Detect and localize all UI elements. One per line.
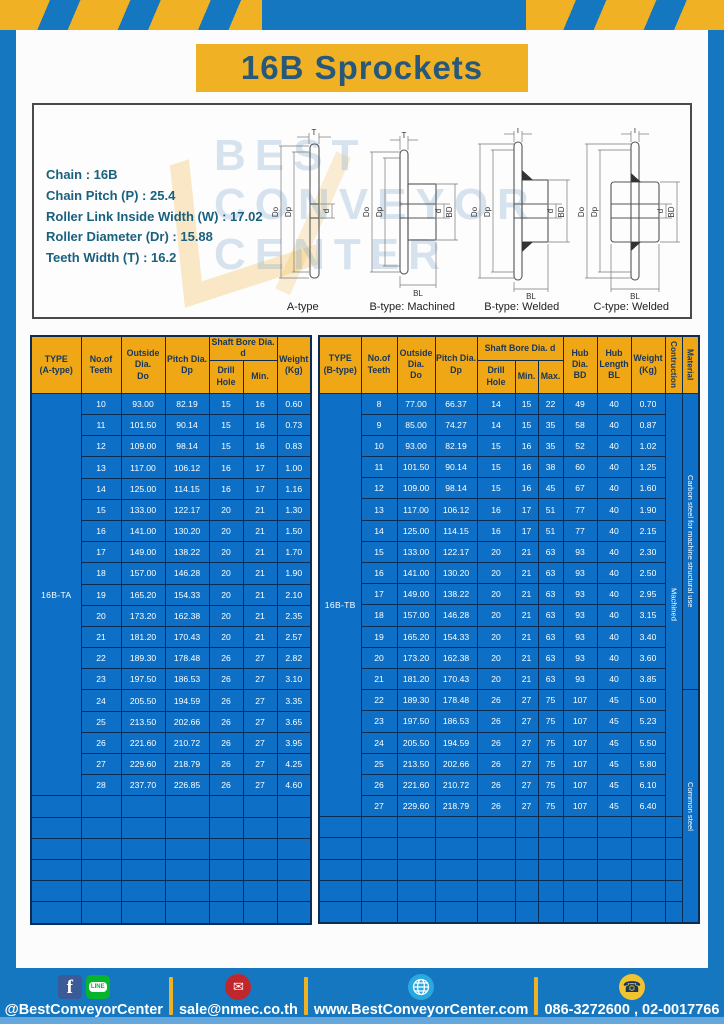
table-cell: 117.00 [397, 499, 435, 520]
table-cell: 27 [81, 754, 121, 775]
table-cell: 130.20 [435, 563, 477, 584]
table-cell: 114.15 [165, 478, 209, 499]
table-cell: 27 [515, 711, 538, 732]
svg-text:BL: BL [413, 289, 423, 298]
table-cell [81, 881, 121, 902]
table-cell [319, 859, 361, 880]
table-cell: 17 [243, 478, 277, 499]
table-cell: 0.87 [631, 414, 665, 435]
table-cell: 21 [515, 541, 538, 562]
table-cell: 40 [597, 563, 631, 584]
table-cell: 58 [563, 414, 597, 435]
table-cell: 114.15 [435, 520, 477, 541]
header-min: Min. [515, 360, 538, 393]
table-cell: 117.00 [121, 457, 165, 478]
table-cell: 82.19 [435, 435, 477, 456]
header-shaft-bore: Shaft Bore Dia. d [477, 336, 563, 360]
header-pitch-dia: Pitch Dia.Dp [435, 336, 477, 393]
b-machined-drawing: T Do Dp d [358, 128, 466, 300]
table-cell: 20 [477, 605, 515, 626]
table-cell: 157.00 [121, 563, 165, 584]
table-cell: 1.02 [631, 435, 665, 456]
email-address[interactable]: sale@nmec.co.th [179, 1002, 298, 1018]
table-cell: 229.60 [121, 754, 165, 775]
table-cell: 3.60 [631, 647, 665, 668]
table-cell: 45 [597, 711, 631, 732]
table-cell: 18 [361, 605, 397, 626]
footer-website[interactable]: www.BestConveyorCenter.com [314, 974, 529, 1018]
table-cell: Carbon steel for machine structural use [682, 393, 699, 690]
table-cell [121, 902, 165, 924]
table-cell: 75 [538, 690, 563, 711]
table-cell: Machined [665, 393, 682, 817]
table-cell: 16 [209, 457, 243, 478]
table-cell: 93 [563, 626, 597, 647]
header-pitch-dia: Pitch Dia.Dp [165, 336, 209, 393]
table-cell: 40 [597, 393, 631, 414]
phone-icon[interactable]: ☎ [619, 974, 645, 1000]
table-cell: 20 [209, 563, 243, 584]
facebook-icon[interactable]: f [58, 975, 82, 999]
table-cell: 1.16 [277, 478, 311, 499]
table-cell [319, 880, 361, 901]
table-cell: 20 [209, 499, 243, 520]
table-cell [277, 859, 311, 880]
header-type: TYPE(A-type) [31, 336, 81, 393]
social-handle[interactable]: @BestConveyorCenter [5, 1002, 163, 1018]
table-cell: 9 [361, 414, 397, 435]
table-cell: 20 [477, 563, 515, 584]
table-cell [665, 880, 682, 901]
b-type-spec-table: TYPE(B-type) No.ofTeeth OutsideDia.Do Pi… [318, 335, 700, 924]
svg-text:T: T [311, 128, 316, 137]
table-cell: 125.00 [397, 520, 435, 541]
table-cell: 16 [515, 478, 538, 499]
table-cell: 52 [563, 435, 597, 456]
spec-teeth-width: Teeth Width (T) : 16.2 [46, 248, 263, 269]
table-cell: 3.40 [631, 626, 665, 647]
table-cell [31, 859, 81, 880]
table-cell: 77.00 [397, 393, 435, 414]
table-cell: 15 [81, 499, 121, 520]
table-cell: 149.00 [397, 584, 435, 605]
table-cell: 15 [515, 414, 538, 435]
table-cell: 107 [563, 732, 597, 753]
table-cell: 49 [563, 393, 597, 414]
table-cell [397, 902, 435, 924]
table-cell: 26 [209, 775, 243, 796]
table-cell [665, 838, 682, 859]
table-cell: 21 [515, 584, 538, 605]
table-cell: 221.60 [121, 732, 165, 753]
table-cell: 13 [361, 499, 397, 520]
table-cell [397, 817, 435, 838]
svg-text:d: d [546, 209, 555, 213]
table-cell: 23 [81, 669, 121, 690]
svg-text:T: T [402, 131, 407, 140]
table-cell [165, 838, 209, 859]
contact-footer: f LINE @BestConveyorCenter ✉ sale@nmec.c… [0, 968, 724, 1024]
line-app-icon[interactable]: LINE [86, 975, 110, 999]
chain-spec-block: Chain : 16B Chain Pitch (P) : 25.4 Rolle… [46, 165, 263, 269]
table-cell: 0.73 [277, 415, 311, 436]
footer-phone[interactable]: ☎ 086-3272600 , 02-0017766 [544, 974, 719, 1018]
footer-divider [304, 977, 308, 1015]
table-cell: 19 [81, 584, 121, 605]
table-cell: 21 [361, 668, 397, 689]
table-cell: 16 [81, 520, 121, 541]
table-cell: 15 [477, 478, 515, 499]
table-cell: 107 [563, 774, 597, 795]
table-cell: 1.60 [631, 478, 665, 499]
svg-text:BD: BD [445, 206, 454, 217]
header-weight: Weight(Kg) [631, 336, 665, 393]
header-construction: Contruction [665, 336, 682, 393]
table-cell: 178.48 [435, 690, 477, 711]
table-cell: 18 [81, 563, 121, 584]
table-cell: 93 [563, 563, 597, 584]
table-cell: 26 [81, 732, 121, 753]
table-cell: 40 [597, 626, 631, 647]
table-cell: 40 [597, 478, 631, 499]
table-cell: 1.30 [277, 499, 311, 520]
table-cell [209, 817, 243, 838]
type-cell: 16B-TA [31, 393, 81, 796]
svg-text:BL: BL [630, 292, 640, 300]
table-cell: 38 [538, 457, 563, 478]
table-cell [121, 881, 165, 902]
table-cell: 20 [81, 605, 121, 626]
table-cell [121, 859, 165, 880]
spec-roller-diameter: Roller Diameter (Dr) : 15.88 [46, 227, 263, 248]
table-cell: 35 [538, 435, 563, 456]
table-cell [277, 817, 311, 838]
header-weight: Weight(Kg) [277, 336, 311, 393]
table-cell: 189.30 [121, 648, 165, 669]
table-cell: 25 [361, 753, 397, 774]
table-cell: 27 [243, 669, 277, 690]
header-hub-dia: Hub Dia.BD [563, 336, 597, 393]
table-cell: 63 [538, 584, 563, 605]
table-cell: 93.00 [397, 435, 435, 456]
diagram-a-type: T Do Dp d A-type [248, 111, 358, 313]
table-cell: 26 [209, 690, 243, 711]
table-cell: 21 [515, 668, 538, 689]
table-cell: 26 [477, 711, 515, 732]
table-cell: 93 [563, 584, 597, 605]
table-cell: 93 [563, 541, 597, 562]
table-cell: 210.72 [165, 732, 209, 753]
table-cell: 77 [563, 499, 597, 520]
table-cell: 15 [209, 436, 243, 457]
table-cell: 130.20 [165, 520, 209, 541]
svg-text:Do: Do [271, 206, 280, 217]
table-cell: 75 [538, 732, 563, 753]
table-cell: 20 [477, 626, 515, 647]
table-cell: 20 [477, 584, 515, 605]
table-cell: 20 [209, 542, 243, 563]
table-cell: 141.00 [121, 520, 165, 541]
diagram-b-welded: T Do Dp d [467, 111, 577, 313]
table-cell: 66.37 [435, 393, 477, 414]
table-cell: 40 [597, 668, 631, 689]
table-cell [435, 902, 477, 924]
table-cell: 12 [361, 478, 397, 499]
table-cell [209, 859, 243, 880]
table-cell: 75 [538, 796, 563, 817]
table-cell: 1.50 [277, 520, 311, 541]
table-cell: 0.70 [631, 393, 665, 414]
table-cell: 21 [515, 647, 538, 668]
table-cell: 63 [538, 563, 563, 584]
table-cell: 75 [538, 711, 563, 732]
table-cell: 3.15 [631, 605, 665, 626]
table-cell [538, 859, 563, 880]
table-cell [397, 838, 435, 859]
table-cell: 3.10 [277, 669, 311, 690]
header-shaft-bore: Shaft Bore Dia. d [209, 336, 277, 360]
top-left-stripes [0, 0, 262, 30]
table-cell: 45 [597, 753, 631, 774]
table-cell: 2.10 [277, 584, 311, 605]
table-cell: 0.60 [277, 393, 311, 414]
table-cell [435, 880, 477, 901]
table-cell: 202.66 [435, 753, 477, 774]
table-cell: 26 [209, 732, 243, 753]
table-cell: 22 [81, 648, 121, 669]
table-cell [563, 902, 597, 924]
table-cell: 63 [538, 541, 563, 562]
table-cell: 51 [538, 520, 563, 541]
table-cell [631, 817, 665, 838]
table-cell [563, 880, 597, 901]
table-cell: 138.22 [165, 542, 209, 563]
table-cell: 101.50 [121, 415, 165, 436]
table-cell [477, 817, 515, 838]
table-cell: 213.50 [397, 753, 435, 774]
table-cell [81, 838, 121, 859]
table-cell [597, 902, 631, 924]
table-cell: 16 [243, 415, 277, 436]
table-cell [31, 902, 81, 924]
table-cell: 13 [81, 457, 121, 478]
table-cell: 23 [361, 711, 397, 732]
table-cell: 210.72 [435, 774, 477, 795]
table-cell: 40 [597, 435, 631, 456]
table-cell: 178.48 [165, 648, 209, 669]
table-cell: 5.80 [631, 753, 665, 774]
table-cell: 154.33 [435, 626, 477, 647]
table-cell [515, 838, 538, 859]
table-cell: 1.00 [277, 457, 311, 478]
table-cell [243, 902, 277, 924]
table-cell [165, 817, 209, 838]
catalog-page: 16B Sprockets BEST CONVEYOR CENTER Chain… [0, 0, 724, 1024]
table-cell: 162.38 [165, 605, 209, 626]
table-cell [563, 838, 597, 859]
table-cell: 133.00 [397, 541, 435, 562]
table-cell: 194.59 [165, 690, 209, 711]
table-cell: 109.00 [121, 436, 165, 457]
table-cell [243, 859, 277, 880]
table-cell: 45 [597, 732, 631, 753]
website-url[interactable]: www.BestConveyorCenter.com [314, 1002, 529, 1018]
table-cell: 16 [477, 499, 515, 520]
table-cell: 26 [477, 774, 515, 795]
table-cell: 11 [81, 415, 121, 436]
table-cell: 63 [538, 668, 563, 689]
table-cell [165, 881, 209, 902]
table-cell [435, 859, 477, 880]
table-cell: 20 [477, 647, 515, 668]
table-cell [397, 880, 435, 901]
table-cell [121, 796, 165, 817]
svg-text:Do: Do [470, 206, 479, 217]
table-cell: 26 [477, 796, 515, 817]
table-cell [631, 859, 665, 880]
table-cell: 27 [243, 690, 277, 711]
table-cell: 16 [243, 436, 277, 457]
svg-text:T: T [515, 128, 520, 135]
spec-diagram-panel: BEST CONVEYOR CENTER Chain : 16B Chain P… [32, 103, 692, 319]
table-cell: 21 [243, 626, 277, 647]
top-right-stripes [526, 0, 724, 30]
diagram-caption: B-type: Machined [369, 301, 455, 313]
footer-social[interactable]: f LINE @BestConveyorCenter [5, 974, 163, 1018]
table-cell [361, 817, 397, 838]
table-cell: 2.15 [631, 520, 665, 541]
table-cell: 17 [515, 520, 538, 541]
b-welded-drawing: T Do Dp d [468, 128, 576, 300]
table-cell: 0.83 [277, 436, 311, 457]
table-cell: 2.30 [631, 541, 665, 562]
table-cell: 21 [243, 563, 277, 584]
table-cell: 26 [477, 732, 515, 753]
table-cell: 90.14 [165, 415, 209, 436]
table-cell [319, 817, 361, 838]
table-cell: 194.59 [435, 732, 477, 753]
table-cell [597, 859, 631, 880]
footer-divider [169, 977, 173, 1015]
table-cell: 122.17 [165, 499, 209, 520]
spec-pitch: Chain Pitch (P) : 25.4 [46, 186, 263, 207]
table-cell [361, 880, 397, 901]
table-cell: 22 [538, 393, 563, 414]
table-cell [538, 838, 563, 859]
table-cell: 165.20 [397, 626, 435, 647]
table-cell [277, 881, 311, 902]
header-min: Min. [243, 360, 277, 393]
title-banner: 16B Sprockets [196, 44, 528, 92]
table-cell: 197.50 [397, 711, 435, 732]
table-cell [597, 880, 631, 901]
table-cell: 17 [361, 584, 397, 605]
table-cell: 3.85 [631, 668, 665, 689]
table-cell: 6.10 [631, 774, 665, 795]
email-icon[interactable]: ✉ [225, 974, 251, 1000]
table-cell: 173.20 [397, 647, 435, 668]
svg-text:d: d [322, 209, 331, 213]
header-drill-hole: Drill Hole [209, 360, 243, 393]
table-cell [121, 838, 165, 859]
table-cell: 21 [81, 626, 121, 647]
table-cell: 107 [563, 690, 597, 711]
table-cell [631, 902, 665, 924]
table-cell [209, 902, 243, 924]
svg-text:Dp: Dp [590, 206, 599, 217]
footer-email[interactable]: ✉ sale@nmec.co.th [179, 974, 298, 1018]
header-max: Max. [538, 360, 563, 393]
table-cell: 93.00 [121, 393, 165, 414]
table-cell [165, 859, 209, 880]
table-cell [665, 817, 682, 838]
table-cell: 26 [361, 774, 397, 795]
table-cell: 2.57 [277, 626, 311, 647]
table-cell: 45 [597, 796, 631, 817]
table-cell: 181.20 [121, 626, 165, 647]
table-cell: 6.40 [631, 796, 665, 817]
table-cell: 14 [477, 393, 515, 414]
table-cell: 109.00 [397, 478, 435, 499]
table-cell: Common steel [682, 690, 699, 924]
table-cell: 63 [538, 626, 563, 647]
table-cell: 15 [209, 415, 243, 436]
table-cell: 237.70 [121, 775, 165, 796]
table-cell: 146.28 [435, 605, 477, 626]
table-cell: 162.38 [435, 647, 477, 668]
table-cell [631, 838, 665, 859]
table-cell [277, 902, 311, 924]
svg-text:Dp: Dp [483, 206, 492, 217]
table-cell [361, 838, 397, 859]
table-cell [243, 796, 277, 817]
table-cell: 15 [361, 541, 397, 562]
table-cell: 154.33 [165, 584, 209, 605]
phone-numbers[interactable]: 086-3272600 , 02-0017766 [544, 1002, 719, 1018]
table-cell: 197.50 [121, 669, 165, 690]
table-cell [563, 859, 597, 880]
table-cell: 21 [515, 626, 538, 647]
table-cell [165, 796, 209, 817]
table-cell: 20 [361, 647, 397, 668]
table-cell: 26 [209, 711, 243, 732]
table-cell: 75 [538, 753, 563, 774]
table-cell: 63 [538, 605, 563, 626]
table-cell: 27 [515, 774, 538, 795]
globe-icon[interactable] [408, 974, 434, 1000]
table-cell: 20 [477, 668, 515, 689]
table-cell: 93 [563, 668, 597, 689]
spec-roller-width: Roller Link Inside Width (W) : 17.02 [46, 207, 263, 228]
table-cell: 63 [538, 647, 563, 668]
table-cell [277, 796, 311, 817]
svg-text:Do: Do [362, 206, 371, 217]
table-cell: 205.50 [121, 690, 165, 711]
table-cell: 82.19 [165, 393, 209, 414]
table-cell [243, 838, 277, 859]
table-cell: 28 [81, 775, 121, 796]
table-cell [209, 796, 243, 817]
spec-chain: Chain : 16B [46, 165, 263, 186]
svg-text:Do: Do [577, 206, 586, 217]
table-cell: 20 [209, 626, 243, 647]
table-cell: 15 [209, 393, 243, 414]
table-cell: 5.23 [631, 711, 665, 732]
table-cell: 106.12 [435, 499, 477, 520]
table-cell: 15 [515, 393, 538, 414]
table-cell: 1.90 [631, 499, 665, 520]
sprocket-diagrams: T Do Dp d A-type [248, 111, 686, 313]
